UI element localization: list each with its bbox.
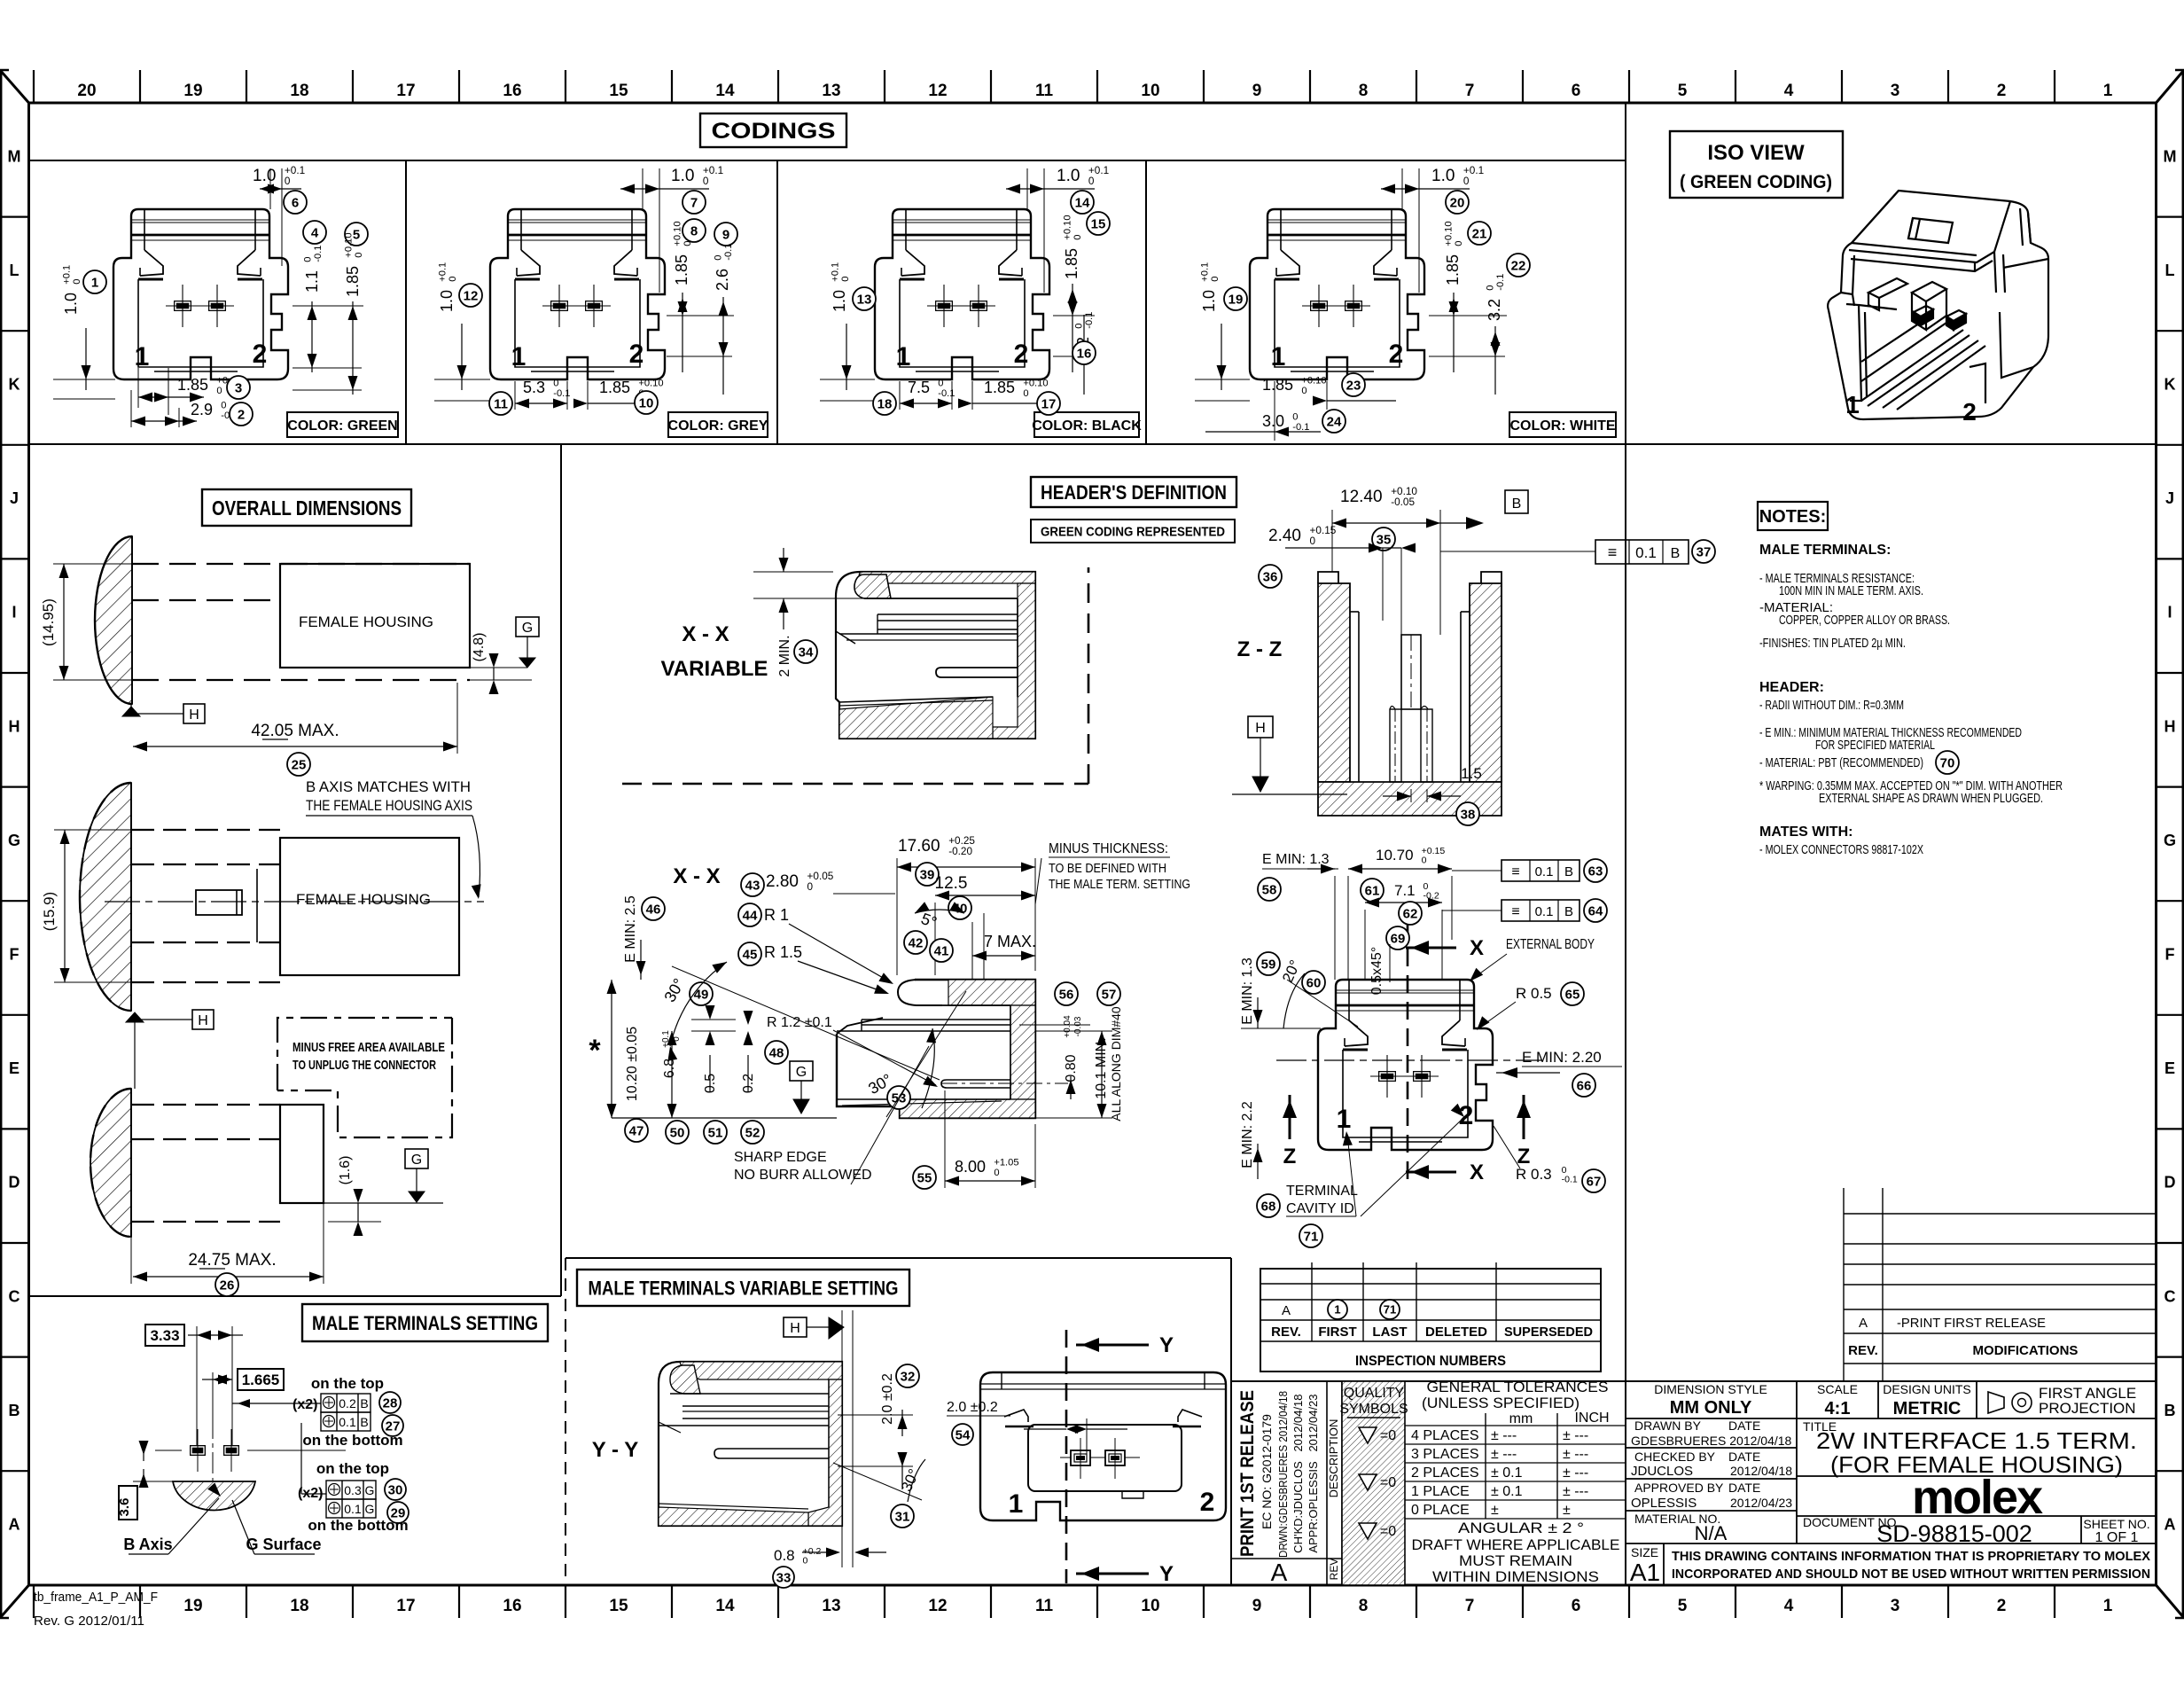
svg-text:0: 0 [354,252,364,257]
svg-text:OVERALL DIMENSIONS: OVERALL DIMENSIONS [212,496,402,520]
svg-text:1.85: 1.85 [344,266,362,297]
svg-text:± ---: ± --- [1491,1447,1517,1462]
svg-text:7: 7 [690,195,698,210]
svg-text:0: 0 [1485,285,1495,291]
svg-text:10: 10 [1141,1597,1159,1615]
svg-text:9: 9 [722,227,729,242]
svg-text:+0.1: +0.1 [61,265,72,285]
svg-text:3: 3 [1891,1597,1900,1615]
svg-text:Z - Z: Z - Z [1237,637,1283,661]
svg-text:69: 69 [1391,931,1406,946]
svg-text:+0.1: +0.1 [830,262,840,282]
svg-text:0: 0 [285,176,291,187]
svg-text:1.665: 1.665 [242,1371,280,1388]
svg-text:=0: =0 [1380,1524,1396,1539]
svg-text:+0.1: +0.1 [1088,165,1109,176]
svg-text:+0.15: +0.15 [1310,525,1337,536]
svg-text:20: 20 [1450,195,1465,210]
svg-text:H: H [198,1013,208,1028]
svg-text:64: 64 [1588,903,1603,918]
svg-text:49: 49 [694,987,709,1002]
svg-text:36: 36 [1263,569,1278,584]
svg-text:SHEET NO.: SHEET NO. [2083,1517,2149,1531]
svg-text:2.40: 2.40 [1268,527,1301,545]
svg-text:CODINGS: CODINGS [712,119,836,144]
svg-text:42.05 MAX.: 42.05 MAX. [251,722,339,740]
svg-text:on the bottom: on the bottom [308,1517,408,1534]
svg-text:0: 0 [682,240,693,246]
svg-text:0: 0 [703,176,709,187]
svg-text:1: 1 [2103,82,2113,100]
svg-text:J: J [10,489,19,507]
svg-text:(x2): (x2) [292,1397,317,1412]
svg-text:mm: mm [1509,1411,1533,1426]
svg-text:56: 56 [1059,987,1074,1002]
svg-text:H: H [2164,717,2176,735]
svg-text:2: 2 [1389,340,1404,369]
svg-text:12: 12 [928,1597,947,1615]
svg-text:+0.1: +0.1 [1199,262,1210,282]
svg-text:17: 17 [1041,396,1057,411]
svg-text:0: 0 [994,1168,999,1178]
svg-text:GREEN CODING REPRESENTED: GREEN CODING REPRESENTED [1041,524,1225,539]
svg-text:2W INTERFACE 1.5 TERM.: 2W INTERFACE 1.5 TERM. [1816,1427,2137,1454]
svg-text:METRIC: METRIC [1893,1399,1962,1418]
svg-text:11: 11 [1035,82,1054,100]
svg-text:2012/04/18: 2012/04/18 [1730,1464,1792,1478]
svg-text:REV.: REV. [1848,1343,1878,1358]
svg-text:28: 28 [383,1395,398,1411]
svg-text:+0.1: +0.1 [1463,165,1484,176]
svg-text:SCALE: SCALE [1817,1382,1858,1396]
svg-text:12: 12 [464,288,479,303]
svg-text:5: 5 [1678,1597,1688,1615]
svg-text:7: 7 [1465,1597,1475,1615]
svg-text:NOTES:: NOTES: [1759,507,1827,527]
svg-text:GDESBRUERES 2012/04/18: GDESBRUERES 2012/04/18 [1631,1434,1792,1448]
svg-text:1 PLACE: 1 PLACE [1411,1484,1470,1499]
svg-text:-0.1: -0.1 [313,246,324,262]
svg-text:9: 9 [1252,1597,1262,1615]
svg-text:Z: Z [1517,1145,1531,1168]
svg-text:MM ONLY: MM ONLY [1670,1398,1752,1418]
svg-text:12: 12 [928,82,947,100]
svg-text:4:1: 4:1 [1825,1399,1851,1418]
svg-text:34: 34 [799,645,814,660]
svg-text:1: 1 [1334,1303,1340,1317]
svg-text:6: 6 [1572,82,1581,100]
svg-text:1.85: 1.85 [177,376,208,394]
svg-text:GENERAL TOLERANCES: GENERAL TOLERANCES [1427,1379,1609,1395]
svg-text:E: E [9,1059,19,1077]
svg-text:+0.10: +0.10 [1301,375,1326,386]
svg-text:8: 8 [690,223,698,238]
svg-text:B: B [1564,904,1573,919]
svg-text:OPLESSIS: OPLESSIS [1631,1496,1696,1511]
svg-text:12.40: 12.40 [1340,488,1383,506]
svg-text:6: 6 [292,195,299,210]
svg-text:0: 0 [216,386,222,396]
svg-text:+0.1: +0.1 [285,165,305,176]
svg-text:COLOR: BLACK: COLOR: BLACK [1032,418,1142,434]
svg-text:0: 0 [1463,176,1470,187]
svg-text:68: 68 [1261,1199,1276,1214]
svg-text:Y: Y [1159,1562,1174,1586]
svg-text:(UNLESS SPECIFIED): (UNLESS SPECIFIED) [1422,1395,1579,1411]
svg-text:INCH: INCH [1574,1411,1609,1426]
svg-text:0: 0 [1292,411,1298,422]
svg-text:1.85: 1.85 [673,254,690,285]
svg-text:PRINT 1ST RELEASE: PRINT 1ST RELEASE [1237,1390,1258,1557]
svg-text:0.8: 0.8 [774,1547,795,1564]
svg-text:COLOR: WHITE: COLOR: WHITE [1509,418,1615,434]
svg-text:7: 7 [1465,82,1475,100]
svg-text:(14.95): (14.95) [40,598,57,646]
svg-text:≡: ≡ [1608,543,1618,561]
svg-text:L: L [10,262,19,279]
svg-text:0: 0 [302,257,313,262]
svg-text:HEADER:: HEADER: [1759,680,1824,695]
svg-text:DRAWN BY: DRAWN BY [1634,1418,1702,1433]
svg-text:SIZE: SIZE [1631,1545,1658,1559]
svg-text:8: 8 [1359,1597,1369,1615]
svg-text:± 0.1: ± 0.1 [1491,1465,1523,1481]
svg-text:41: 41 [934,943,949,958]
svg-text:B: B [1671,546,1681,561]
svg-text:0: 0 [448,277,458,282]
svg-text:TO UNPLUG THE CONNECTOR: TO UNPLUG THE CONNECTOR [292,1058,436,1073]
svg-text:18: 18 [290,1597,308,1615]
svg-text:71: 71 [1384,1303,1396,1317]
svg-text:50: 50 [670,1125,685,1140]
svg-text:R 1: R 1 [764,906,789,924]
svg-text:24.75 MAX.: 24.75 MAX. [188,1251,276,1270]
svg-text:0: 0 [221,400,226,410]
svg-text:B: B [9,1402,20,1419]
svg-text:11: 11 [1035,1597,1054,1615]
svg-text:E MIN: 2.20: E MIN: 2.20 [1522,1049,1602,1066]
svg-text:21: 21 [1472,226,1487,241]
svg-text:-0.03: -0.03 [1073,1016,1083,1036]
svg-text:2 PLACES: 2 PLACES [1411,1465,1478,1481]
svg-text:R 0.3: R 0.3 [1516,1166,1552,1183]
svg-text:TO BE DEFINED WITH: TO BE DEFINED WITH [1049,861,1166,876]
svg-text:37: 37 [1696,544,1712,559]
svg-text:0: 0 [1023,388,1028,399]
svg-text:+0.1: +0.1 [703,165,723,176]
svg-text:(1.6): (1.6) [338,1156,353,1185]
svg-text:0.1: 0.1 [1535,904,1554,919]
svg-text:on the bottom: on the bottom [302,1432,402,1449]
svg-text:23: 23 [1346,378,1361,393]
svg-text:66: 66 [1577,1078,1592,1093]
svg-text:± ---: ± --- [1491,1428,1517,1443]
svg-text:53: 53 [892,1090,907,1106]
svg-text:46: 46 [646,902,661,917]
svg-text:4: 4 [1784,82,1794,100]
svg-text:X: X [1470,1160,1484,1184]
svg-text:0: 0 [713,255,723,261]
svg-text:D: D [2164,1174,2176,1192]
svg-text:MALE TERMINALS SETTING: MALE TERMINALS SETTING [312,1312,538,1334]
svg-text:11: 11 [494,396,508,411]
svg-text:FOR SPECIFIED MATERIAL: FOR SPECIFIED MATERIAL [1815,738,1935,753]
svg-text:SUPERSEDED: SUPERSEDED [1504,1325,1593,1340]
svg-text:10.20 ±0.05: 10.20 ±0.05 [625,1027,640,1102]
svg-text:A: A [1282,1303,1291,1318]
svg-text:17.60: 17.60 [898,837,940,856]
svg-text:+1.05: +1.05 [994,1157,1018,1168]
svg-text:A: A [2164,1516,2176,1534]
svg-text:THE MALE TERM. SETTING: THE MALE TERM. SETTING [1049,877,1190,892]
svg-text:K: K [9,376,20,394]
svg-text:38: 38 [1461,807,1476,822]
svg-text:0: 0 [1072,234,1083,239]
svg-text:I: I [12,604,16,621]
svg-text:DATE: DATE [1728,1481,1760,1495]
svg-text:+0.10: +0.10 [1023,378,1048,388]
svg-text:±: ± [1491,1503,1499,1518]
svg-text:13: 13 [822,82,840,100]
svg-text:25: 25 [292,757,307,772]
svg-text:J: J [2165,489,2174,507]
svg-text:70: 70 [1940,755,1955,770]
svg-text:B: B [1512,496,1522,512]
svg-text:QUALITY: QUALITY [1344,1386,1405,1401]
svg-text:+0.10: +0.10 [1062,215,1072,239]
svg-text:I: I [2167,604,2172,621]
svg-text:MALE TERMINALS:: MALE TERMINALS: [1759,543,1891,558]
svg-text:APPR:OPLESSIS: APPR:OPLESSIS [1306,1461,1320,1553]
svg-text:+0.25: +0.25 [948,835,975,847]
svg-text:ALL ALONG DIM#40: ALL ALONG DIM#40 [1109,1006,1123,1121]
svg-text:+0.05: +0.05 [807,871,834,882]
svg-text:54: 54 [955,1427,971,1442]
svg-text:+0.10: +0.10 [1391,486,1417,497]
svg-text:2012/04/23: 2012/04/23 [1306,1394,1320,1451]
svg-text:≡: ≡ [1511,904,1519,919]
svg-text:MINUS THICKNESS:: MINUS THICKNESS: [1049,841,1168,856]
svg-text:3: 3 [235,380,242,395]
svg-text:0: 0 [72,279,82,285]
svg-text:X: X [1470,936,1484,960]
svg-text:H: H [9,717,20,735]
svg-text:- MOLEX CONNECTORS 98817-102X: - MOLEX CONNECTORS 98817-102X [1759,842,1923,857]
svg-text:-0.1: -0.1 [723,244,734,261]
svg-text:≡: ≡ [1511,864,1519,879]
svg-text:1.85: 1.85 [984,379,1015,396]
svg-text:F: F [2165,946,2175,964]
svg-text:A: A [1859,1316,1868,1331]
svg-text:G: G [522,621,533,636]
svg-text:31: 31 [895,1509,910,1524]
svg-text:0.1: 0.1 [1535,864,1554,879]
svg-text:0: 0 [1301,386,1306,396]
svg-text:± ---: ± --- [1563,1447,1588,1462]
svg-text:24: 24 [1327,414,1342,429]
svg-text:1 OF 1: 1 OF 1 [2095,1530,2139,1545]
svg-text:Y - Y: Y - Y [592,1438,638,1462]
svg-text:22: 22 [1511,258,1526,273]
svg-text:1: 1 [135,342,150,371]
svg-text:Rev. G 2012/01/11: Rev. G 2012/01/11 [34,1614,144,1629]
svg-text:7 MAX.: 7 MAX. [984,933,1036,950]
svg-text:-0.1: -0.1 [1084,312,1095,329]
svg-text:H: H [1255,721,1266,736]
svg-text:SD-98815-002: SD-98815-002 [1876,1520,2032,1547]
svg-text:DATE: DATE [1728,1450,1760,1464]
svg-text:19: 19 [183,82,202,100]
svg-text:1: 1 [896,342,911,371]
svg-text:1: 1 [91,275,98,290]
svg-text:DATE: DATE [1728,1418,1760,1433]
svg-text:14: 14 [1075,195,1090,210]
svg-text:G: G [365,1502,375,1516]
svg-text:0 PLACE: 0 PLACE [1411,1503,1470,1518]
svg-text:-PRINT FIRST RELEASE: -PRINT FIRST RELEASE [1897,1316,2046,1331]
svg-text:55: 55 [917,1170,932,1185]
svg-text:A: A [9,1516,20,1534]
svg-text:57: 57 [1102,987,1117,1002]
svg-text:67: 67 [1587,1174,1602,1189]
svg-text:3.6: 3.6 [117,1498,132,1517]
svg-text:17: 17 [396,1597,415,1615]
svg-text:1.85: 1.85 [599,379,630,396]
svg-text:0.1: 0.1 [1635,544,1657,561]
svg-text:2: 2 [253,340,268,369]
svg-text:16: 16 [1077,346,1092,361]
svg-text:-0.20: -0.20 [948,846,972,857]
svg-text:-0.1: -0.1 [938,388,955,399]
svg-text:CHECKED BY: CHECKED BY [1634,1450,1716,1464]
svg-text:8: 8 [1359,82,1369,100]
svg-text:+0.10: +0.10 [638,378,663,388]
svg-text:+0.10: +0.10 [672,221,682,246]
svg-text:FEMALE HOUSING: FEMALE HOUSING [296,891,431,908]
svg-text:+0.10: +0.10 [343,232,354,257]
svg-text:1.1: 1.1 [303,270,321,293]
svg-text:E: E [2164,1059,2175,1077]
svg-text:71: 71 [1304,1229,1319,1244]
svg-text:-FINISHES: TIN PLATED 2µ MIN.: -FINISHES: TIN PLATED 2µ MIN. [1759,636,1906,651]
svg-text:NO BURR ALLOWED: NO BURR ALLOWED [734,1168,872,1183]
svg-text:LAST: LAST [1372,1325,1407,1340]
svg-text:100N MIN IN MALE TERM. AXIS.: 100N MIN IN MALE TERM. AXIS. [1779,583,1923,598]
svg-text:A: A [1271,1559,1288,1586]
svg-text:2.0 ±0.2: 2.0 ±0.2 [947,1400,998,1415]
svg-text:INSPECTION NUMBERS: INSPECTION NUMBERS [1355,1354,1506,1369]
svg-text:R 1.5: R 1.5 [764,943,802,961]
svg-text:EXTERNAL SHAPE AS DRAWN WHEN P: EXTERNAL SHAPE AS DRAWN WHEN PLUGGED. [1819,791,2043,806]
svg-text:± ---: ± --- [1563,1484,1588,1499]
svg-text:44: 44 [743,908,758,923]
svg-text:0: 0 [1088,176,1095,187]
svg-text:1.5: 1.5 [1461,765,1482,782]
svg-text:SHARP EDGE: SHARP EDGE [734,1150,827,1165]
svg-text:6: 6 [1572,1597,1581,1615]
svg-text:63: 63 [1588,864,1603,879]
svg-text:G: G [411,1153,422,1168]
svg-text:DESCRIPTION: DESCRIPTION [1327,1419,1340,1498]
svg-text:K: K [2164,376,2176,394]
svg-text:0.3: 0.3 [344,1483,362,1497]
svg-text:2012/04/23: 2012/04/23 [1730,1496,1792,1510]
svg-text:15: 15 [609,82,628,100]
svg-text:3.2: 3.2 [1486,299,1503,321]
svg-text:B: B [2164,1402,2176,1419]
svg-text:32: 32 [901,1369,916,1384]
svg-text:-0.05: -0.05 [1391,496,1415,508]
svg-text:D: D [9,1174,20,1192]
svg-text:1.0: 1.0 [253,167,276,185]
svg-text:tb_frame_A1_P_AM_F: tb_frame_A1_P_AM_F [34,1590,158,1605]
svg-text:2.0 ±0.2: 2.0 ±0.2 [880,1373,895,1425]
svg-text:M: M [2164,147,2177,165]
svg-text:12.5: 12.5 [935,874,968,893]
svg-text:2: 2 [1997,1597,2007,1615]
svg-text:2.9: 2.9 [191,401,213,418]
svg-text:B Axis: B Axis [123,1536,172,1553]
svg-text:1: 1 [1337,1105,1352,1134]
svg-text:G: G [796,1065,807,1080]
svg-text:26: 26 [220,1278,235,1293]
svg-text:1.0: 1.0 [1431,167,1455,185]
svg-text:59: 59 [1261,957,1276,972]
svg-text:10.70: 10.70 [1376,847,1414,864]
svg-text:G: G [2164,832,2176,849]
svg-text:5.3: 5.3 [523,379,545,396]
svg-text:0: 0 [553,378,558,388]
svg-text:+0.10: +0.10 [1443,221,1454,246]
svg-text:WITHIN DIMENSIONS: WITHIN DIMENSIONS [1432,1568,1599,1585]
svg-text:14: 14 [715,82,735,100]
svg-text:19: 19 [183,1597,202,1615]
svg-text:61: 61 [1365,883,1380,898]
svg-text:CH'KD:JDUCLOS: CH'KD:JDUCLOS [1291,1461,1305,1553]
svg-text:2.80: 2.80 [766,872,799,891]
svg-text:THE FEMALE HOUSING AXIS: THE FEMALE HOUSING AXIS [306,797,472,814]
svg-text:R 1.2 ±0.1: R 1.2 ±0.1 [767,1015,832,1030]
svg-text:0: 0 [803,1556,808,1567]
svg-text:- MATERIAL: PBT (RECOMMENDED): - MATERIAL: PBT (RECOMMENDED) [1759,755,1923,770]
svg-text:COPPER, COPPER ALLOY OR BRASS.: COPPER, COPPER ALLOY OR BRASS. [1779,613,1950,628]
svg-text:± 0.1: ± 0.1 [1491,1484,1523,1499]
svg-text:1: 1 [2103,1597,2113,1615]
svg-text:13: 13 [822,1597,840,1615]
svg-text:on the top: on the top [311,1375,384,1392]
svg-text:ISO VIEW: ISO VIEW [1707,141,1805,165]
svg-text:L: L [2165,262,2175,279]
svg-text:62: 62 [1403,906,1418,921]
svg-text:Z: Z [1283,1145,1297,1168]
svg-text:6.8: 6.8 [662,1059,677,1078]
svg-text:33: 33 [776,1570,792,1585]
svg-text:Y: Y [1159,1333,1174,1357]
svg-text:MATES WITH:: MATES WITH: [1759,824,1852,840]
svg-text:65: 65 [1565,987,1580,1002]
svg-text:REV.: REV. [1271,1325,1301,1340]
svg-text:42: 42 [909,935,924,950]
svg-text:3.0: 3.0 [1262,412,1284,430]
svg-text:1.0: 1.0 [1057,167,1080,185]
svg-text:FEMALE HOUSING: FEMALE HOUSING [299,613,433,630]
svg-text:M: M [8,147,21,165]
svg-text:1.0: 1.0 [671,167,694,185]
svg-text:17: 17 [396,82,415,100]
svg-text:18: 18 [877,396,893,411]
svg-text:0: 0 [1310,535,1316,547]
svg-text:39: 39 [920,867,935,882]
